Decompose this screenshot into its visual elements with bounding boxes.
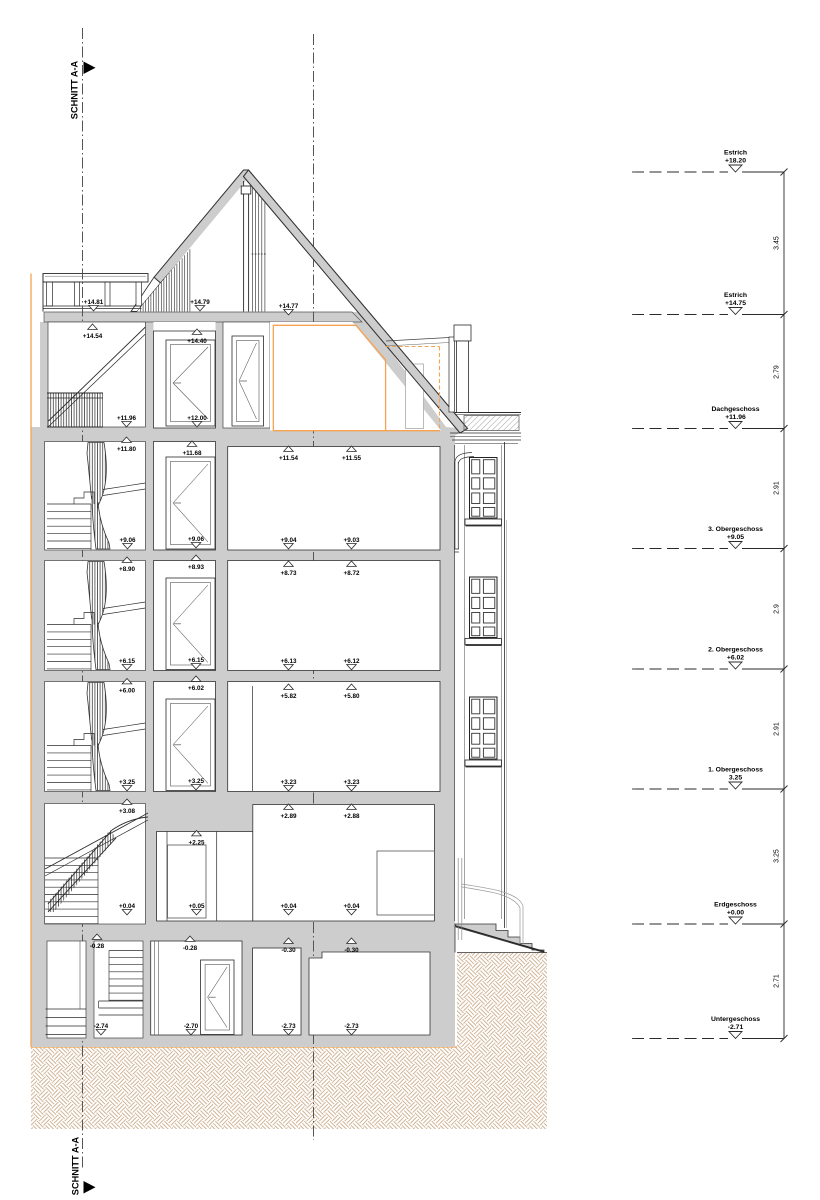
svg-text:SCHNITT A-A: SCHNITT A-A [71, 1136, 81, 1195]
svg-text:+2.88: +2.88 [344, 813, 360, 820]
svg-text:+0.04: +0.04 [344, 903, 360, 910]
svg-text:+6.02: +6.02 [727, 655, 744, 662]
svg-text:Estrich: Estrich [724, 150, 747, 157]
svg-text:+14.81: +14.81 [84, 299, 104, 306]
svg-text:-0.30: -0.30 [281, 947, 296, 954]
svg-text:2.91: 2.91 [774, 722, 781, 736]
svg-text:+12.00: +12.00 [187, 415, 207, 422]
svg-text:+6.12: +6.12 [344, 658, 360, 665]
svg-text:+3.23: +3.23 [344, 779, 360, 786]
svg-text:-2.70: -2.70 [184, 1023, 199, 1030]
svg-text:3.25: 3.25 [774, 849, 781, 863]
svg-text:2.79: 2.79 [774, 365, 781, 379]
svg-text:+11.96: +11.96 [725, 414, 746, 421]
svg-text:+14.54: +14.54 [83, 333, 103, 340]
svg-text:+0.05: +0.05 [189, 903, 205, 910]
svg-text:2.9: 2.9 [774, 604, 781, 614]
svg-text:+0.04: +0.04 [281, 903, 297, 910]
svg-text:+3.23: +3.23 [281, 779, 297, 786]
svg-text:Erdgeschoss: Erdgeschoss [714, 902, 757, 909]
svg-text:+0.00: +0.00 [727, 910, 744, 917]
svg-text:2.91: 2.91 [774, 481, 781, 495]
svg-text:+5.80: +5.80 [344, 693, 360, 700]
svg-text:-2.73: -2.73 [344, 1023, 359, 1030]
svg-text:+9.03: +9.03 [344, 537, 360, 544]
svg-text:+3.08: +3.08 [119, 808, 135, 815]
svg-text:+0.04: +0.04 [119, 903, 135, 910]
svg-text:-0.28: -0.28 [183, 945, 198, 952]
svg-text:3.25: 3.25 [729, 775, 742, 782]
svg-text:+14.40: +14.40 [187, 338, 207, 345]
svg-text:+9.04: +9.04 [281, 537, 297, 544]
svg-text:+14.75: +14.75 [725, 300, 746, 307]
svg-text:-2.73: -2.73 [281, 1023, 296, 1030]
svg-text:+9.06: +9.06 [120, 537, 136, 544]
svg-text:+14.77: +14.77 [279, 303, 299, 310]
svg-text:+6.15: +6.15 [119, 658, 135, 665]
svg-text:+6.15: +6.15 [188, 657, 204, 664]
svg-text:-0.28: -0.28 [90, 943, 105, 950]
svg-text:SCHNITT A-A: SCHNITT A-A [70, 60, 80, 119]
svg-text:3. Obergeschoss: 3. Obergeschoss [708, 526, 763, 533]
svg-text:+8.72: +8.72 [344, 570, 360, 577]
svg-text:+11.96: +11.96 [117, 415, 137, 422]
svg-text:+8.93: +8.93 [188, 564, 204, 571]
svg-text:+2.25: +2.25 [189, 840, 205, 847]
svg-text:+3.25: +3.25 [188, 778, 204, 785]
svg-text:+11.55: +11.55 [342, 455, 362, 462]
svg-text:Dachgeschoss: Dachgeschoss [712, 406, 760, 413]
svg-text:+11.80: +11.80 [117, 446, 137, 453]
svg-text:3.45: 3.45 [774, 236, 781, 250]
svg-text:+9.06: +9.06 [188, 536, 204, 543]
svg-text:+6.13: +6.13 [281, 658, 297, 665]
svg-text:+6.00: +6.00 [119, 688, 135, 695]
svg-text:Estrich: Estrich [724, 292, 747, 299]
svg-text:+9.05: +9.05 [727, 534, 744, 541]
svg-text:+8.90: +8.90 [119, 566, 135, 573]
svg-text:1. Obergeschoss: 1. Obergeschoss [708, 767, 763, 774]
svg-text:2.71: 2.71 [774, 974, 781, 988]
svg-text:-2.71: -2.71 [728, 1024, 744, 1031]
svg-text:-2.74: -2.74 [94, 1023, 109, 1030]
svg-text:+2.89: +2.89 [281, 813, 297, 820]
svg-text:-0.30: -0.30 [344, 947, 359, 954]
svg-text:Untergeschoss: Untergeschoss [711, 1016, 760, 1023]
svg-text:+11.68: +11.68 [182, 450, 202, 457]
svg-text:+5.82: +5.82 [281, 693, 297, 700]
svg-text:+6.02: +6.02 [188, 685, 204, 692]
svg-text:2. Obergeschoss: 2. Obergeschoss [708, 647, 763, 654]
svg-text:+8.73: +8.73 [281, 570, 297, 577]
svg-text:+11.54: +11.54 [279, 455, 299, 462]
svg-text:+3.25: +3.25 [119, 779, 135, 786]
svg-text:+18.20: +18.20 [725, 158, 746, 165]
svg-text:+14.79: +14.79 [190, 299, 210, 306]
